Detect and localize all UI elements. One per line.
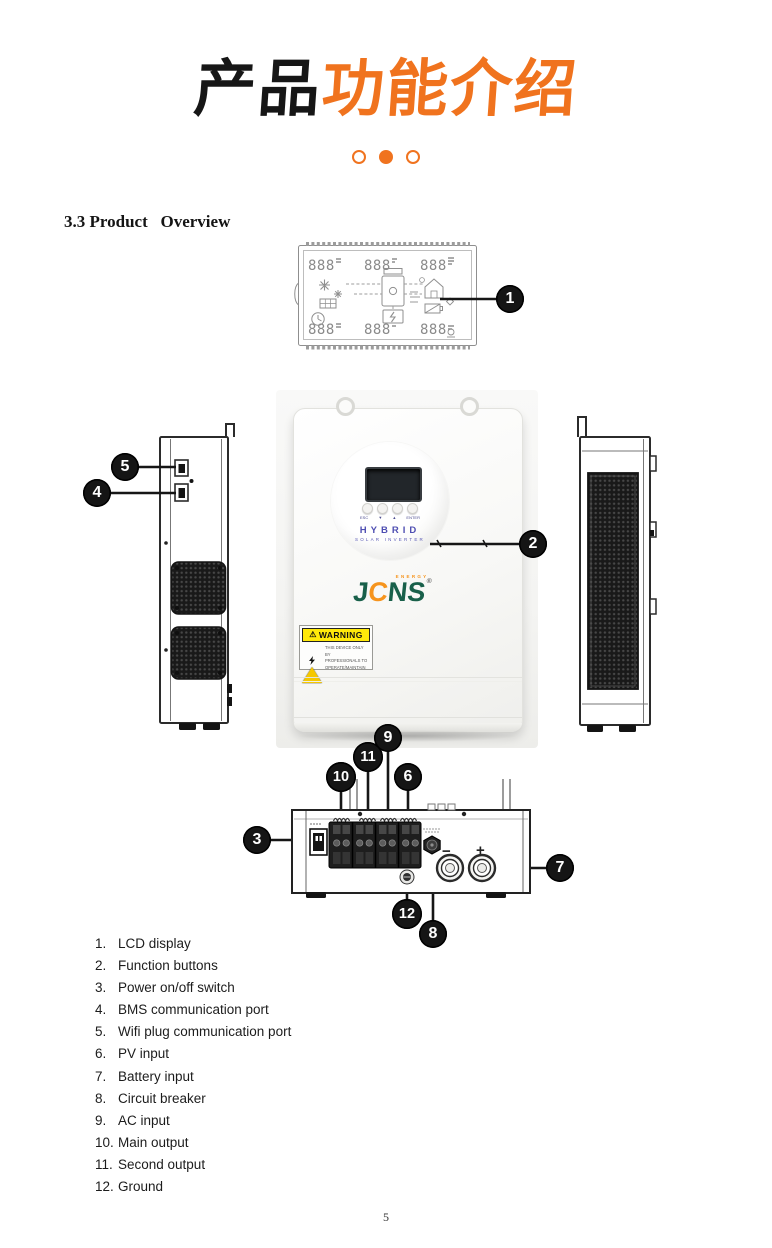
svg-text:888: 888 xyxy=(420,322,447,338)
down-button xyxy=(377,503,388,514)
dot-outline-icon xyxy=(406,150,420,164)
callout-badge-1: 1 xyxy=(496,285,524,313)
legend-item: 9. AC input xyxy=(95,1113,291,1128)
svg-text:888: 888 xyxy=(308,322,335,338)
callout-badge-5: 5 xyxy=(111,453,139,481)
legend-item-label: LCD display xyxy=(118,936,191,951)
legend-list: 1. LCD display 2. Function buttons 3. Po… xyxy=(95,936,291,1201)
lcd-screen xyxy=(365,467,422,502)
battery-plus-sign: + xyxy=(476,842,485,859)
terminal-lugs xyxy=(334,819,417,822)
legend-item: 3. Power on/off switch xyxy=(95,980,291,995)
terminal-block xyxy=(329,822,421,868)
legend-item-number: 5. xyxy=(95,1024,118,1039)
warning-header: ⚠ WARNING xyxy=(302,628,370,642)
svg-text:888: 888 xyxy=(364,322,391,338)
legend-item: 4. BMS communication port xyxy=(95,1002,291,1017)
legend-item-label: Battery input xyxy=(118,1069,194,1084)
photo-shadow xyxy=(296,730,518,742)
brand-subtitle: SOLAR INVERTER xyxy=(320,537,460,542)
case-seam xyxy=(294,717,522,718)
legend-item-number: 4. xyxy=(95,1002,118,1017)
svg-text:888: 888 xyxy=(420,258,447,274)
brand-logo: JCNS®ENERGY xyxy=(320,577,463,608)
dot-filled-icon xyxy=(379,150,393,164)
mount-hook xyxy=(226,424,234,437)
warning-label: ⚠ WARNING THIS DEVICE ONLY BY PROFESSION… xyxy=(299,625,373,670)
legend-item-number: 3. xyxy=(95,980,118,995)
legend-item-label: Wifi plug communication port xyxy=(118,1024,291,1039)
esc-button xyxy=(362,503,373,514)
page-title-orange: 功能介绍 xyxy=(320,55,581,124)
cooling-fan xyxy=(172,627,226,679)
warning-text: THIS DEVICE ONLY BY PROFESSIONALS TO OPE… xyxy=(325,645,370,671)
cooling-fan xyxy=(172,562,226,614)
legend-item-label: Ground xyxy=(118,1179,163,1194)
left-side-view xyxy=(160,424,234,730)
legend-item-number: 10. xyxy=(95,1135,118,1150)
page-title-black: 产品 xyxy=(192,55,325,124)
page-title: 产品功能介绍 xyxy=(0,56,772,124)
legend-item: 5. Wifi plug communication port xyxy=(95,1024,291,1039)
legend-item-number: 7. xyxy=(95,1069,118,1084)
callout-badge-4: 4 xyxy=(83,479,111,507)
legend-item-number: 12. xyxy=(95,1179,118,1194)
legend-item: 10. Main output xyxy=(95,1135,291,1150)
callout-badge-11: 11 xyxy=(353,742,383,772)
dot-outline-icon xyxy=(352,150,366,164)
callout-badge-7: 7 xyxy=(546,854,574,882)
hanging-loop-icon xyxy=(336,397,355,416)
callout-badge-6: 6 xyxy=(394,763,422,791)
page-number: 5 xyxy=(0,1210,772,1225)
legend-item-label: PV input xyxy=(118,1046,169,1061)
logo-energy-text: ENERGY xyxy=(395,574,428,579)
hanging-loop-icon xyxy=(460,397,479,416)
callout-badge-2: 2 xyxy=(519,530,547,558)
battery-minus-sign: − xyxy=(442,843,451,860)
callout-badge-8: 8 xyxy=(419,920,447,948)
legend-item: 6. PV input xyxy=(95,1046,291,1061)
svg-text:888: 888 xyxy=(308,258,335,274)
enter-button xyxy=(407,503,418,514)
circuit-breaker xyxy=(423,829,441,854)
right-side-view xyxy=(578,417,656,732)
legend-item-label: Second output xyxy=(118,1157,205,1172)
case-seam xyxy=(294,681,522,682)
mount-hook xyxy=(578,417,586,437)
function-button-labels: ESC ▼ ▲ ENTER xyxy=(360,515,420,520)
legend-item-number: 8. xyxy=(95,1091,118,1106)
legend-item-label: BMS communication port xyxy=(118,1002,269,1017)
legend-item: 1. LCD display xyxy=(95,936,291,951)
legend-item-number: 1. xyxy=(95,936,118,951)
front-view-photo: ESC ▼ ▲ ENTER HYBRID SOLAR INVERTER JCNS… xyxy=(276,390,538,748)
legend-item-number: 2. xyxy=(95,958,118,973)
section-heading: 3.3 Product Overview xyxy=(64,212,230,232)
callout-badge-3: 3 xyxy=(243,826,271,854)
callout-badge-12: 12 xyxy=(392,899,422,929)
legend-item-label: Function buttons xyxy=(118,958,218,973)
case-seam xyxy=(294,677,522,678)
wifi-port xyxy=(175,460,188,476)
function-buttons xyxy=(362,503,418,514)
up-button xyxy=(392,503,403,514)
legend-item: 2. Function buttons xyxy=(95,958,291,973)
bms-port xyxy=(175,484,188,501)
legend-item-number: 9. xyxy=(95,1113,118,1128)
power-switch xyxy=(310,824,327,855)
manual-page: 产品功能介绍 3.3 Product Overview ESC ▼ ▲ ENTE… xyxy=(0,0,772,1248)
lcd-display-diagram: 888 888 888 888 888 888 xyxy=(295,244,477,348)
legend-item-label: Power on/off switch xyxy=(118,980,235,995)
pagination-dots xyxy=(0,150,772,164)
warning-triangle-icon: ⚠ xyxy=(309,631,317,639)
callout-badge-10: 10 xyxy=(326,762,356,792)
legend-item: 7. Battery input xyxy=(95,1069,291,1084)
legend-item-label: Circuit breaker xyxy=(118,1091,206,1106)
legend-item: 12. Ground xyxy=(95,1179,291,1194)
brand-title: HYBRID xyxy=(320,525,460,536)
legend-item: 8. Circuit breaker xyxy=(95,1091,291,1106)
legend-item-label: AC input xyxy=(118,1113,170,1128)
legend-item-label: Main output xyxy=(118,1135,189,1150)
svg-text:888: 888 xyxy=(364,258,391,274)
legend-item-number: 11. xyxy=(95,1157,118,1172)
legend-item-number: 6. xyxy=(95,1046,118,1061)
hazard-triangle-icon xyxy=(302,650,322,667)
legend-item: 11. Second output xyxy=(95,1157,291,1172)
inverter-front-body: ESC ▼ ▲ ENTER HYBRID SOLAR INVERTER JCNS… xyxy=(293,408,523,732)
ground-screw xyxy=(400,870,414,884)
side-vent-mesh xyxy=(588,473,638,689)
